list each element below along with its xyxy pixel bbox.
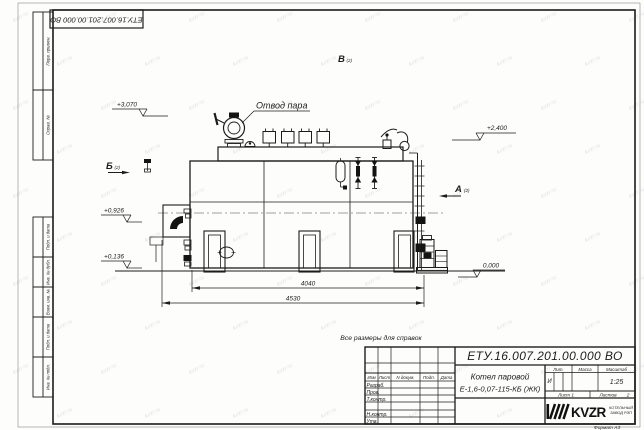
watermark-text: kvzr.ru — [56, 55, 73, 68]
view-a-label: А — [454, 184, 462, 195]
tb-masshtab-value: 1:25 — [610, 379, 624, 386]
tb-hdr-list: Лист — [378, 375, 391, 380]
elev-0926: +0,926 — [104, 208, 124, 215]
watermark-text: kvzr.ru — [408, 55, 425, 68]
watermark-text: kvzr.ru — [540, 99, 557, 112]
margin-column-labels: Перв. примен. Справ. № Подп. и дата Инв.… — [46, 36, 51, 390]
logo-sub1: КОТЕЛЬНЫЙ — [609, 406, 633, 410]
logo-kvzr: KVZR — [571, 405, 607, 420]
watermark-text: kvzr.ru — [320, 231, 337, 244]
elev-2400: +2,400 — [487, 125, 507, 132]
elev-0000: 0,000 — [483, 263, 500, 270]
watermark-text: kvzr.ru — [584, 319, 601, 332]
watermark-text: kvzr.ru — [188, 11, 205, 24]
dim-4040: 4040 — [301, 281, 316, 288]
watermark-text: kvzr.ru — [452, 99, 469, 112]
drawing-sheet: kvzr.rukvzr.rukvzr.rukvzr.rukvzr.rukvzr.… — [0, 0, 644, 430]
label-inv-dubl: Инв. № дубл. — [46, 259, 51, 285]
tb-product-line2: Е-1,6-0,07-115-КБ (ЖК) — [460, 385, 541, 394]
label-perv-primen: Перв. примен. — [46, 36, 51, 65]
watermark-text: kvzr.ru — [584, 231, 601, 244]
label-inv-podl: Инв. № подл. — [46, 364, 51, 390]
watermark-text: kvzr.ru — [232, 231, 249, 244]
water-level-gauges — [355, 158, 378, 189]
watermark-text: kvzr.ru — [628, 11, 644, 24]
view-b-ref: (2) — [115, 165, 121, 170]
watermark-text: kvzr.ru — [276, 363, 293, 376]
pressure-gauge — [336, 158, 347, 190]
watermark-text: kvzr.ru — [12, 99, 29, 112]
watermark-text: kvzr.ru — [232, 407, 249, 420]
watermark-text: kvzr.ru — [12, 363, 29, 376]
watermark-text: kvzr.ru — [320, 319, 337, 332]
watermark-text: kvzr.ru — [496, 407, 513, 420]
watermark-text: kvzr.ru — [232, 55, 249, 68]
watermark-text: kvzr.ru — [364, 99, 381, 112]
view-b-label: Б — [106, 161, 113, 172]
watermark-text: kvzr.ru — [628, 187, 644, 200]
watermark-text: kvzr.ru — [628, 275, 644, 288]
watermark-text: kvzr.ru — [12, 187, 29, 200]
watermark-text: kvzr.ru — [540, 11, 557, 24]
watermark-text: kvzr.ru — [408, 143, 425, 156]
elev-0136: +0,136 — [104, 254, 124, 261]
tb-lit-header: Лит. — [552, 367, 564, 372]
tb-sheet-label: Лист 1 — [557, 393, 574, 398]
tb-hdr-izm: Изм — [367, 375, 375, 380]
tb-hdr-data: Дата — [440, 375, 453, 380]
watermark-text: kvzr.ru — [320, 407, 337, 420]
watermark-text: kvzr.ru — [12, 275, 29, 288]
watermark-text: kvzr.ru — [320, 143, 337, 156]
watermark-text: kvzr.ru — [276, 187, 293, 200]
view-v-ref: (2) — [347, 58, 353, 63]
watermark-text: kvzr.ru — [276, 275, 293, 288]
logo-sub2: ЗАВОД РЭП — [610, 411, 632, 415]
watermark-text: kvzr.ru — [188, 99, 205, 112]
watermark-text: kvzr.ru — [144, 407, 161, 420]
watermark-text: kvzr.ru — [144, 319, 161, 332]
tb-massa-header: Масса — [578, 367, 592, 372]
boiler-body — [190, 161, 413, 268]
tb-hdr-ndokum: N докум. — [396, 375, 414, 380]
tb-row-prov: Пров. — [367, 390, 380, 396]
watermark-text: kvzr.ru — [56, 143, 73, 156]
left-fittings — [144, 159, 192, 266]
watermark-text: kvzr.ru — [452, 11, 469, 24]
label-podp-data-1: Подп. и дата — [46, 223, 51, 250]
watermark-text: kvzr.ru — [100, 275, 117, 288]
tb-row-nkontr: Н.контр. — [367, 412, 388, 418]
boiler-drawing — [101, 109, 516, 307]
company-logo: KVZR КОТЕЛЬНЫЙ ЗАВОД РЭП — [547, 404, 634, 420]
label-sprav-no: Справ. № — [46, 115, 51, 135]
watermark-text: kvzr.ru — [320, 55, 337, 68]
tb-row-utv: Утв. — [367, 419, 378, 425]
tb-product-line1: Котел паровой — [471, 373, 530, 382]
steam-outlet-valve — [215, 113, 245, 148]
watermark-text: kvzr.ru — [496, 319, 513, 332]
reference-note: Все размеры для справок — [340, 334, 422, 342]
label-podp-data-2: Подп. и дата — [46, 323, 51, 350]
watermark-text: kvzr.ru — [232, 319, 249, 332]
watermark-text: kvzr.ru — [408, 319, 425, 332]
dim-4530: 4530 — [286, 296, 301, 303]
watermark-text: kvzr.ru — [56, 407, 73, 420]
steam-outlet-label: Отвод пара — [256, 101, 307, 111]
tb-row-razrab: Разраб. — [367, 383, 385, 389]
watermark-text: kvzr.ru — [408, 407, 425, 420]
tb-sheets-label: Листов — [598, 393, 617, 398]
format-note: Формат А3 — [594, 425, 621, 430]
watermark-text: kvzr.ru — [540, 187, 557, 200]
watermark-text: kvzr.ru — [364, 11, 381, 24]
tb-doc-number: ЕТУ.16.007.201.00.000 ВО — [467, 349, 623, 363]
watermark-text: kvzr.ru — [188, 275, 205, 288]
watermark-text: kvzr.ru — [496, 231, 513, 244]
watermark-text: kvzr.ru — [56, 319, 73, 332]
drum-valve-boxes — [263, 129, 330, 148]
view-v-label: В — [338, 54, 345, 65]
tb-row-tkontr: Т.контр. — [367, 397, 387, 403]
watermark-text: kvzr.ru — [496, 55, 513, 68]
tb-masshtab-header: Масштаб — [606, 367, 627, 372]
steam-callout-leader — [242, 111, 310, 123]
watermark-text: kvzr.ru — [100, 363, 117, 376]
watermark-text: kvzr.ru — [628, 99, 644, 112]
watermark-text: kvzr.ru — [100, 187, 117, 200]
elev-3070: +3,070 — [117, 102, 137, 109]
watermark-text: kvzr.ru — [188, 187, 205, 200]
tb-sheets-value: 2 — [626, 393, 630, 398]
watermark-text: kvzr.ru — [584, 143, 601, 156]
label-vzam-inv: Взам. инв. № — [46, 289, 51, 315]
watermark-text: kvzr.ru — [540, 275, 557, 288]
tb-hdr-podp: Подп. — [423, 375, 435, 380]
watermark-text: kvzr.ru — [364, 275, 381, 288]
top-stamp: ЕТУ.16.007.201.00.000 ВО — [50, 10, 143, 28]
watermark-text: kvzr.ru — [144, 143, 161, 156]
watermark-text: kvzr.ru — [12, 11, 29, 24]
watermark-text: kvzr.ru — [56, 231, 73, 244]
watermark-text: kvzr.ru — [496, 143, 513, 156]
top-stamp-docnumber: ЕТУ.16.007.201.00.000 ВО — [50, 16, 142, 25]
view-a-ref: (2) — [464, 188, 470, 193]
watermark-text: kvzr.ru — [276, 11, 293, 24]
watermark-text: kvzr.ru — [100, 99, 117, 112]
watermark-text: kvzr.ru — [584, 55, 601, 68]
drawing-labels: Отвод пара Б (2) А (2) В (2) +3,070 +2,4… — [104, 54, 507, 342]
watermark-text: kvzr.ru — [188, 363, 205, 376]
watermark-text: kvzr.ru — [144, 55, 161, 68]
tb-lit-value: И — [547, 379, 552, 385]
